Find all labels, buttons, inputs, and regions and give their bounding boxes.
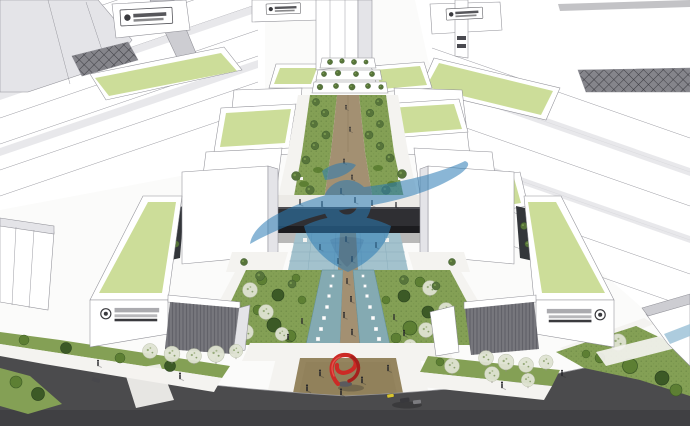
campus-rendering: [0, 0, 690, 426]
company-sign-board: [446, 7, 483, 20]
rendering-stage: [0, 0, 690, 426]
upper-garden-axis: [288, 95, 408, 152]
company-sign-board: [266, 3, 301, 15]
diagrid-roof-right: [578, 68, 690, 92]
company-sign-board: [120, 7, 173, 26]
left-edge-building: [0, 224, 54, 310]
